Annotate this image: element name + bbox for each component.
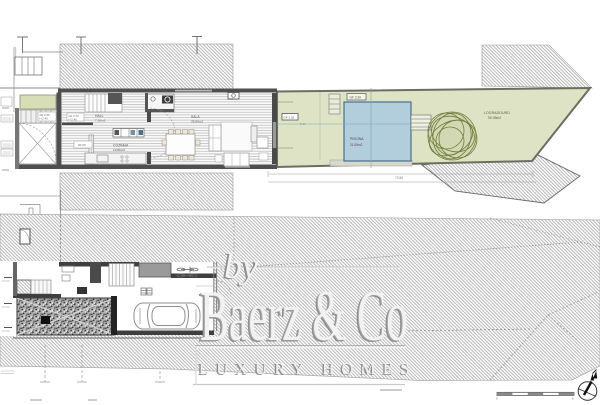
svg-text:73.56: 73.56 xyxy=(395,176,403,180)
svg-text:HALL: HALL xyxy=(95,114,104,118)
svg-text:PISCINA: PISCINA xyxy=(350,137,364,141)
svg-text:00.00: 00.00 xyxy=(78,143,86,147)
svg-text:SALA: SALA xyxy=(191,115,200,119)
svg-text:H 2.40: H 2.40 xyxy=(40,117,49,121)
svg-text:GF 3.30: GF 3.30 xyxy=(350,95,362,99)
svg-text:LUXURY HOMES: LUXURY HOMES xyxy=(199,359,417,378)
svg-text:21.08m2: 21.08m2 xyxy=(350,143,363,147)
svg-text:10.86m2: 10.86m2 xyxy=(113,148,125,152)
svg-text:LOGRADOURO: LOGRADOURO xyxy=(484,111,510,115)
svg-text:8.00: 8.00 xyxy=(228,97,234,101)
svg-text:GF 2.55: GF 2.55 xyxy=(284,115,295,119)
svg-text:Baerz & Co: Baerz & Co xyxy=(200,276,408,356)
svg-text:90.05m2: 90.05m2 xyxy=(488,116,501,120)
svg-text:35.80m2: 35.80m2 xyxy=(191,120,203,124)
svg-text:7.16m2: 7.16m2 xyxy=(95,119,106,123)
svg-text:H 2.40: H 2.40 xyxy=(69,117,78,121)
svg-text:COZINHA: COZINHA xyxy=(113,144,129,148)
